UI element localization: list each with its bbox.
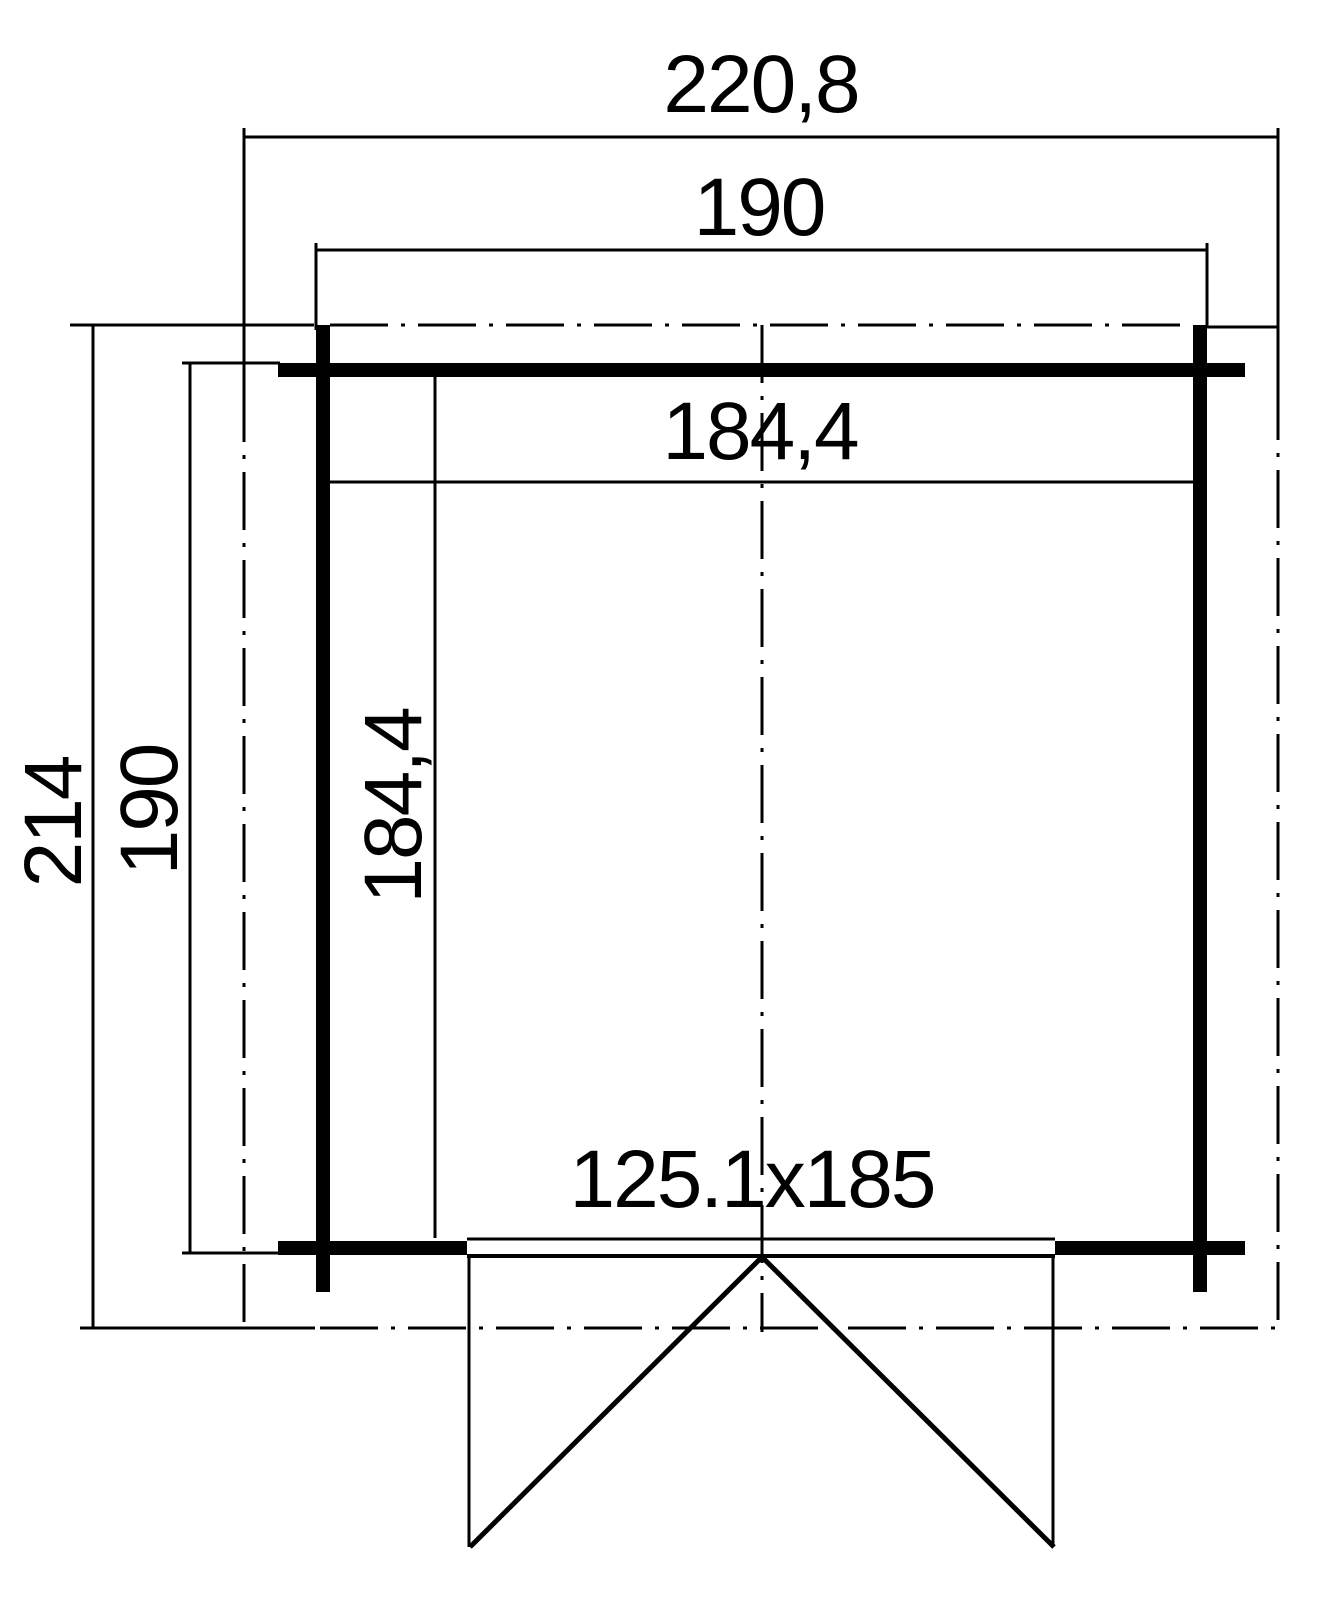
wall-right (1193, 325, 1207, 1292)
wall-left (316, 325, 330, 1292)
label-door-size: 125.1x185 (569, 1139, 934, 1221)
label-outer-width: 190 (694, 167, 825, 249)
label-outer-depth: 190 (109, 745, 191, 876)
label-inner-width: 184,4 (662, 391, 857, 473)
door-swing-left (470, 1257, 762, 1547)
door-swing-right (762, 1257, 1054, 1547)
wall-bottom-right-segment (1055, 1241, 1245, 1255)
wall-bottom-left-segment (278, 1241, 467, 1255)
label-overall-width: 220,8 (663, 44, 858, 126)
label-inner-depth: 184,4 (353, 708, 435, 903)
label-overall-depth: 214 (13, 757, 95, 888)
floorplan-drawing (0, 0, 1329, 1600)
floorplan-canvas: 220,8 190 184,4 214 190 184,4 125.1x185 (0, 0, 1329, 1600)
